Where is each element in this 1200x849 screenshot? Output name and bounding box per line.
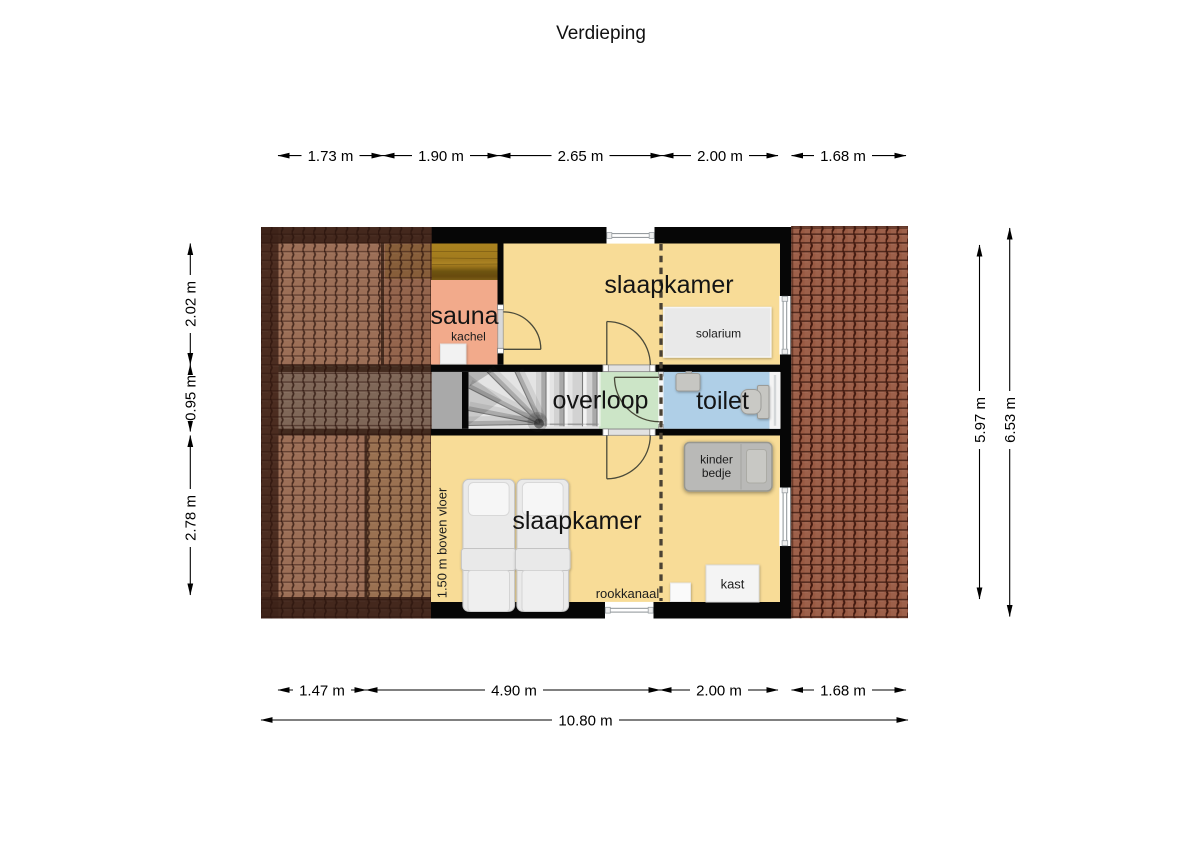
svg-text:4.90 m: 4.90 m: [491, 682, 537, 699]
svg-text:1.90 m: 1.90 m: [418, 148, 464, 165]
svg-text:2.00 m: 2.00 m: [696, 682, 742, 699]
svg-text:2.00 m: 2.00 m: [697, 148, 743, 165]
svg-text:5.97 m: 5.97 m: [972, 397, 989, 443]
svg-text:toilet: toilet: [696, 387, 749, 415]
svg-text:1.68 m: 1.68 m: [820, 682, 866, 699]
svg-text:0.95 m: 0.95 m: [183, 375, 200, 421]
svg-text:overloop: overloop: [553, 387, 649, 415]
svg-text:Verdieping: Verdieping: [556, 23, 646, 44]
svg-text:kachel: kachel: [451, 330, 486, 344]
svg-text:bedje: bedje: [702, 466, 732, 480]
svg-text:1.68 m: 1.68 m: [820, 148, 866, 165]
svg-text:slaapkamer: slaapkamer: [512, 507, 641, 535]
svg-text:1.73 m: 1.73 m: [308, 148, 354, 165]
svg-text:rookkanaal: rookkanaal: [596, 586, 660, 601]
svg-text:kast: kast: [721, 577, 745, 592]
svg-text:solarium: solarium: [696, 327, 741, 341]
svg-text:slaapkamer: slaapkamer: [604, 271, 733, 299]
svg-text:2.78 m: 2.78 m: [183, 495, 200, 541]
svg-text:2.02 m: 2.02 m: [183, 281, 200, 327]
svg-text:6.53 m: 6.53 m: [1002, 397, 1019, 443]
svg-text:1.47 m: 1.47 m: [299, 682, 345, 699]
svg-text:1.50 m boven vloer: 1.50 m boven vloer: [435, 487, 450, 598]
svg-text:10.80 m: 10.80 m: [558, 712, 612, 729]
svg-text:sauna: sauna: [430, 302, 498, 330]
svg-text:kinder: kinder: [700, 453, 733, 467]
svg-text:2.65 m: 2.65 m: [558, 148, 604, 165]
